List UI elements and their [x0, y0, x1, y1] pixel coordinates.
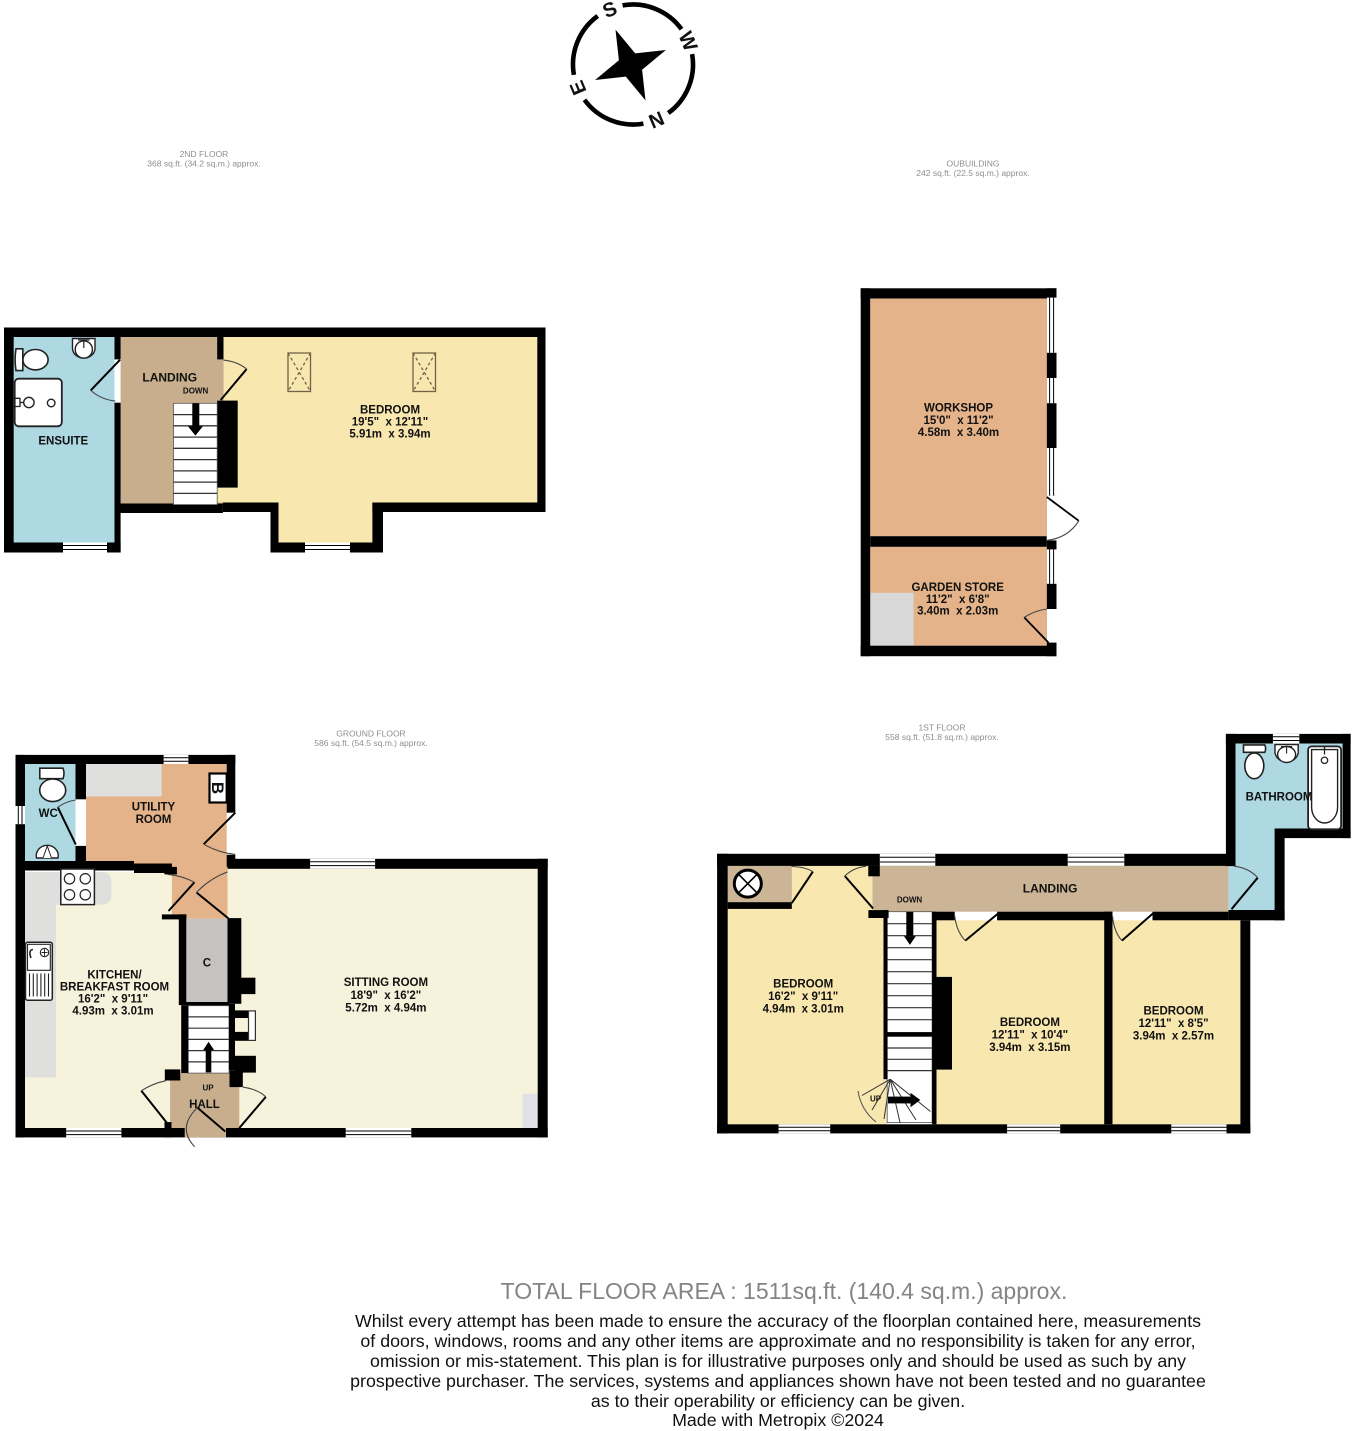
svg-text:TOTAL FLOOR AREA : 1511sq.ft.: TOTAL FLOOR AREA : 1511sq.ft. (140.4 sq.… — [501, 1278, 1068, 1304]
svg-text:5.91m x 3.94m: 5.91m x 3.94m — [349, 429, 430, 441]
svg-text:prospective purchaser. The ser: prospective purchaser. The services, sys… — [350, 1371, 1206, 1391]
svg-text:DOWN: DOWN — [897, 895, 923, 904]
svg-text:UP: UP — [203, 1084, 215, 1093]
svg-text:BEDROOM: BEDROOM — [773, 979, 833, 991]
svg-text:UTILITY: UTILITY — [132, 802, 176, 814]
svg-text:BEDROOM: BEDROOM — [1000, 1017, 1060, 1029]
svg-text:ENSUITE: ENSUITE — [38, 436, 88, 448]
svg-text:SITTING ROOM: SITTING ROOM — [344, 977, 428, 989]
svg-text:4.58m x 3.40m: 4.58m x 3.40m — [918, 427, 999, 439]
svg-text:BATHROOM: BATHROOM — [1246, 792, 1313, 804]
svg-text:4.93m x 3.01m: 4.93m x 3.01m — [72, 1006, 153, 1018]
svg-text:5.72m x 4.94m: 5.72m x 4.94m — [345, 1003, 426, 1015]
svg-text:OUBUILDING: OUBUILDING — [947, 159, 1000, 169]
svg-text:C: C — [203, 958, 211, 970]
svg-text:1ST FLOOR: 1ST FLOOR — [918, 723, 965, 733]
svg-text:WC: WC — [39, 808, 58, 820]
svg-text:KITCHEN/: KITCHEN/ — [87, 970, 142, 982]
svg-text:DOWN: DOWN — [183, 386, 209, 395]
svg-text:15'0" x 11'2": 15'0" x 11'2" — [923, 415, 993, 427]
svg-text:18'9" x 16'2": 18'9" x 16'2" — [351, 990, 422, 1002]
svg-text:UP: UP — [870, 1095, 882, 1104]
svg-text:3.94m x 3.15m: 3.94m x 3.15m — [989, 1042, 1070, 1054]
svg-text:368 sq.ft. (34.2 sq.m.) approx: 368 sq.ft. (34.2 sq.m.) approx. — [147, 159, 260, 169]
svg-text:ROOM: ROOM — [136, 814, 172, 826]
svg-text:as to their operability or eff: as to their operability or efficiency ca… — [591, 1391, 965, 1411]
svg-text:2ND FLOOR: 2ND FLOOR — [180, 149, 229, 159]
svg-text:12'11" x 10'4": 12'11" x 10'4" — [992, 1030, 1069, 1042]
svg-text:19'5" x 12'11": 19'5" x 12'11" — [352, 417, 429, 429]
svg-text:WORKSHOP: WORKSHOP — [924, 403, 993, 415]
svg-text:558 sq.ft. (51.8 sq.m.) approx: 558 sq.ft. (51.8 sq.m.) approx. — [885, 732, 998, 742]
svg-text:BEDROOM: BEDROOM — [1143, 1006, 1203, 1018]
svg-text:BEDROOM: BEDROOM — [360, 405, 420, 417]
svg-text:GROUND FLOOR: GROUND FLOOR — [336, 729, 405, 739]
svg-text:LANDING: LANDING — [1023, 881, 1078, 895]
svg-text:omission or mis-statement. Thi: omission or mis-statement. This plan is … — [370, 1351, 1186, 1371]
svg-text:16'2" x 9'11": 16'2" x 9'11" — [78, 994, 148, 1006]
svg-text:4.94m x 3.01m: 4.94m x 3.01m — [763, 1004, 844, 1016]
svg-text:BREAKFAST ROOM: BREAKFAST ROOM — [60, 982, 169, 994]
svg-text:HALL: HALL — [189, 1099, 220, 1111]
svg-text:3.40m x 2.03m: 3.40m x 2.03m — [917, 606, 998, 618]
svg-text:Made with Metropix ©2024: Made with Metropix ©2024 — [672, 1410, 884, 1430]
svg-text:B: B — [208, 782, 227, 794]
svg-text:242 sq.ft. (22.5 sq.m.) approx: 242 sq.ft. (22.5 sq.m.) approx. — [916, 168, 1029, 178]
svg-text:16'2" x 9'11": 16'2" x 9'11" — [768, 991, 838, 1003]
svg-text:LANDING: LANDING — [142, 371, 197, 385]
svg-text:of doors, windows, rooms and a: of doors, windows, rooms and any other i… — [360, 1331, 1195, 1351]
svg-text:Whilst every attempt has been: Whilst every attempt has been made to en… — [355, 1311, 1201, 1331]
svg-text:3.94m x 2.57m: 3.94m x 2.57m — [1133, 1031, 1214, 1043]
svg-text:11'2" x 6'8": 11'2" x 6'8" — [926, 594, 990, 606]
svg-text:GARDEN STORE: GARDEN STORE — [911, 582, 1004, 594]
svg-text:586 sq.ft. (54.5 sq.m.) approx: 586 sq.ft. (54.5 sq.m.) approx. — [314, 738, 427, 748]
svg-text:12'11" x 8'5": 12'11" x 8'5" — [1138, 1018, 1208, 1030]
